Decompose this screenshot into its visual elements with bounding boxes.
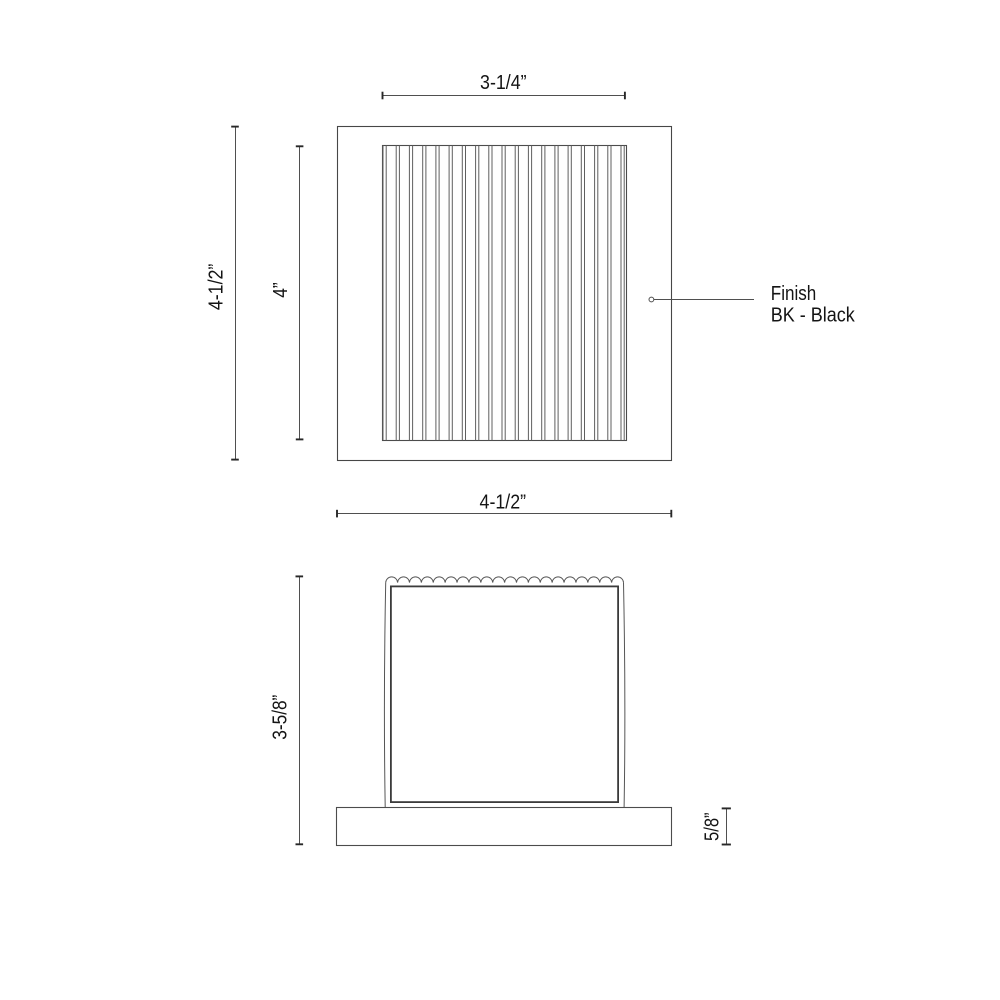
- svg-text:3-1/4”: 3-1/4”: [480, 72, 527, 94]
- svg-text:BK - Black: BK - Black: [771, 304, 856, 326]
- svg-text:3-5/8”: 3-5/8”: [270, 695, 292, 740]
- svg-text:Finish: Finish: [771, 283, 817, 305]
- svg-text:5/8”: 5/8”: [702, 812, 724, 841]
- svg-text:4”: 4”: [270, 282, 292, 298]
- svg-text:4-1/2”: 4-1/2”: [480, 492, 527, 514]
- svg-text:4-1/2”: 4-1/2”: [205, 264, 227, 311]
